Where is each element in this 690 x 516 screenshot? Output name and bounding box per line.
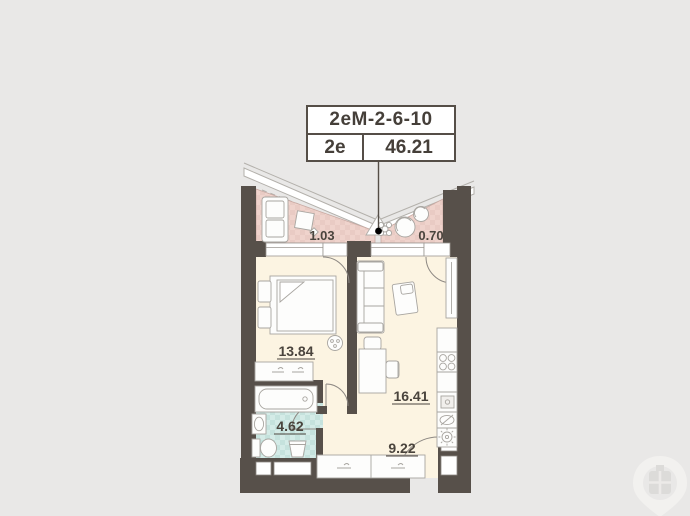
toilet xyxy=(252,439,277,457)
apartment-code: 2еМ-2-6-10 xyxy=(308,107,454,135)
balcony-left-area-label: 1.03 xyxy=(309,228,334,243)
tall-cabinet xyxy=(446,258,457,318)
bedroom-dresser xyxy=(255,362,313,381)
apartment-title-card: 2еМ-2-6-10 2е 46.21 xyxy=(306,105,456,162)
living-kitchen-area-label: 16.41 xyxy=(393,388,428,404)
apartment-type: 2е xyxy=(308,135,364,160)
ceiling-light-icon xyxy=(328,336,343,351)
location-pin-window-logo-icon xyxy=(633,456,687,516)
hallway-area-label: 9.22 xyxy=(388,440,415,456)
balcony-right-area-label: 0.70 xyxy=(418,228,443,243)
oven-icon xyxy=(441,396,454,408)
kitchen-sink-icon xyxy=(440,415,454,425)
bed xyxy=(270,276,336,334)
laundry-basket-icon xyxy=(289,441,306,457)
floorplan-screenshot: 1.03 0.70 13.84 16.41 4.62 9.22 2еМ-2-6-… xyxy=(0,0,690,516)
apartment-total-area: 46.21 xyxy=(364,135,454,160)
window-right xyxy=(371,243,424,256)
balcony-sofa xyxy=(262,197,288,242)
window-left xyxy=(266,243,323,256)
hall-wardrobe xyxy=(317,455,425,478)
bathroom-sink xyxy=(252,414,266,434)
bedroom-area-label: 13.84 xyxy=(278,343,313,359)
bathtub xyxy=(255,386,317,412)
bathroom-area-label: 4.62 xyxy=(276,418,303,434)
floor-plan: 1.03 0.70 13.84 16.41 4.62 9.22 xyxy=(0,0,690,516)
living-sofa xyxy=(357,261,384,333)
armchair xyxy=(392,282,418,316)
leader-dot xyxy=(375,228,382,235)
